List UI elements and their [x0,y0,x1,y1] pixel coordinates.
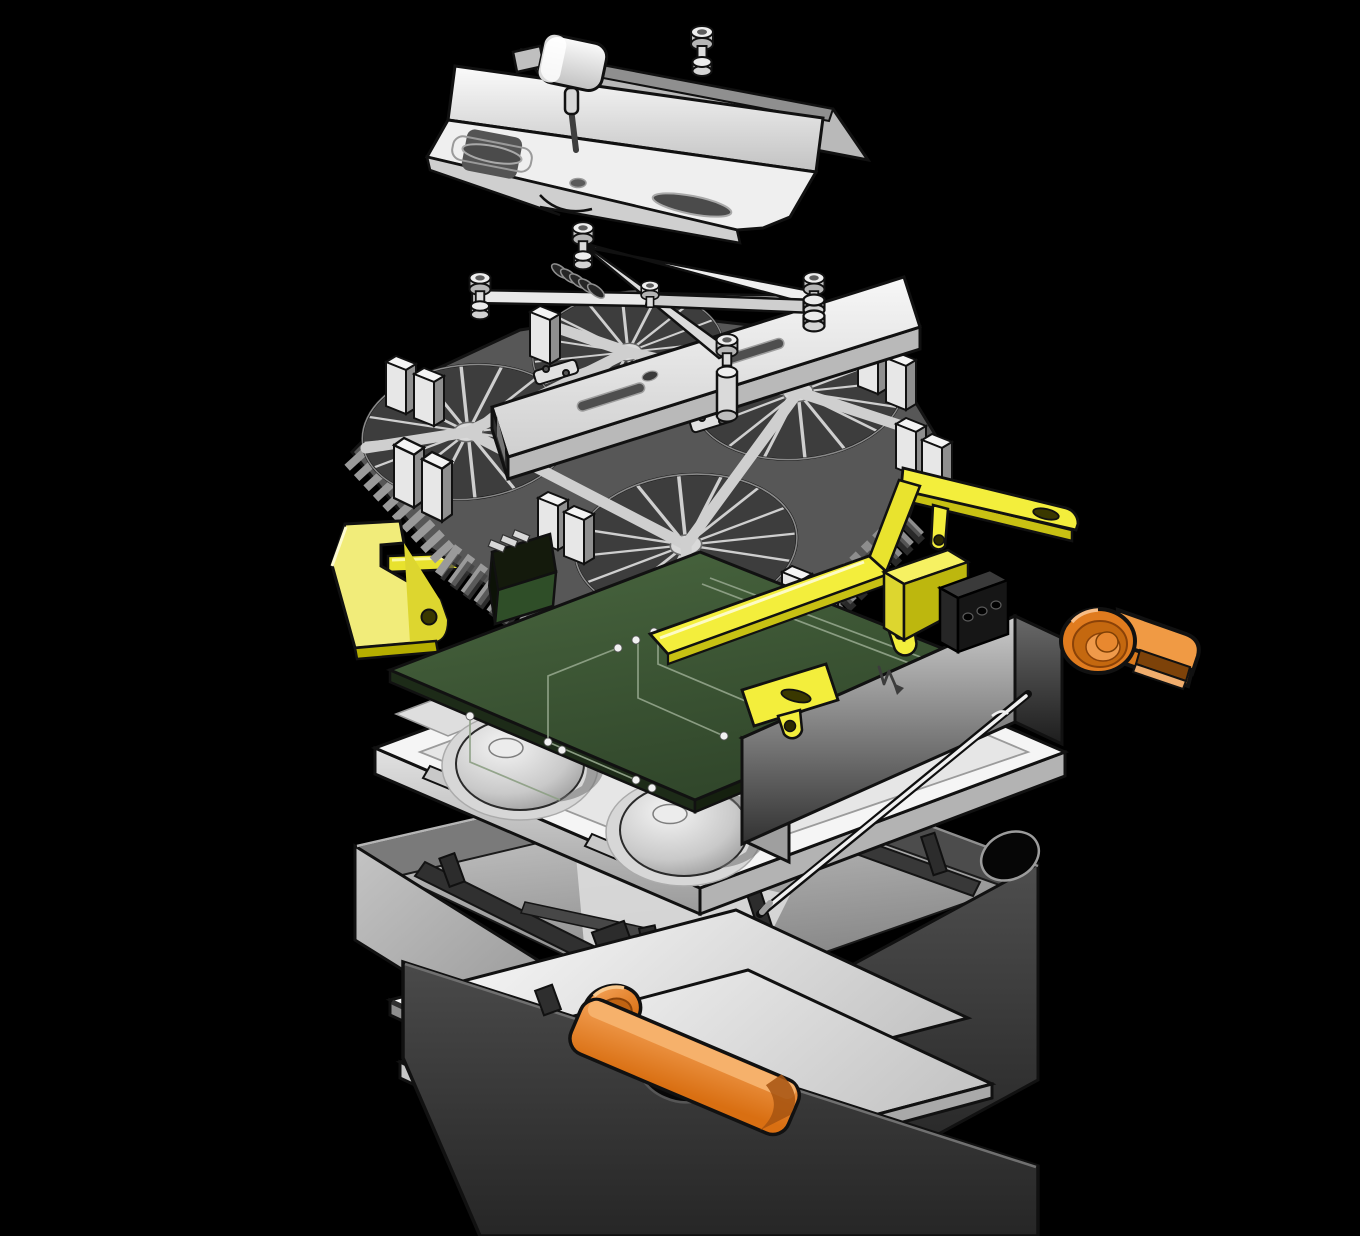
illustration-canvas: Exploded isometric view of a rugged fanl… [0,0,1360,1236]
clip-screw-standoff [717,334,738,421]
clip-screw-stack [804,272,825,331]
bracket-hole [570,179,586,188]
bracket-hole [422,610,437,625]
exploded-assembly-illustration: Exploded isometric view of a rugged fanl… [0,0,1360,1236]
